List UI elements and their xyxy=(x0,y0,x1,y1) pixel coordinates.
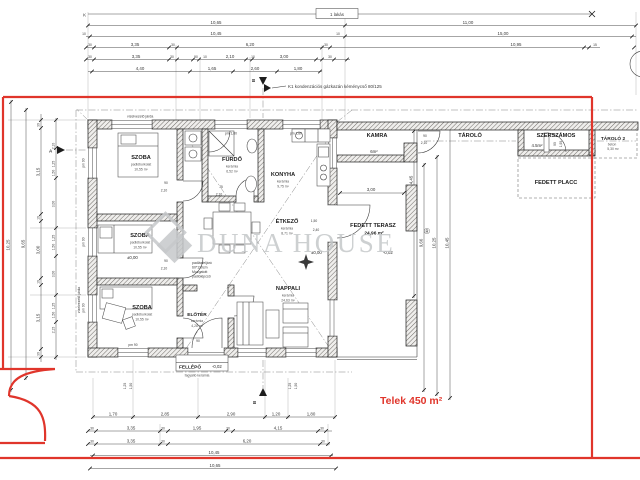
chair xyxy=(123,317,136,330)
door-dim: 75 xyxy=(219,185,223,189)
door-dim: 2,10 xyxy=(216,193,223,197)
registered-mark: ® xyxy=(424,227,430,236)
dim-label: 1,50 xyxy=(52,170,56,177)
room-material: fagyálló kerámia xyxy=(185,374,210,378)
dim-label: 30 xyxy=(324,43,328,47)
dim-label: 1,50 xyxy=(52,244,56,251)
dim-label: 11,00 xyxy=(463,20,474,25)
dim-label: 1,70 xyxy=(109,412,118,417)
dim-label: 6,20 xyxy=(243,439,252,444)
parapet-label: pm 1,80 xyxy=(290,132,302,136)
door-dim: 1,95 xyxy=(559,141,563,148)
dim-label: 15,00 xyxy=(498,31,510,36)
dim-label: 10,25 xyxy=(6,239,11,251)
dim-label: 1,25 xyxy=(123,383,127,390)
parapet-label: pm 1,80 xyxy=(225,132,237,136)
dim-label: 1,50 xyxy=(52,312,56,319)
dim-label: 30 xyxy=(328,55,332,59)
dim-label: 10,45 xyxy=(211,31,223,36)
parapet-label: pm 90 xyxy=(128,343,137,347)
dim-label: 10 xyxy=(37,216,41,220)
room-name: ELŐTÉR xyxy=(187,310,207,318)
plot-size-label: Telek 450 m² xyxy=(380,395,443,407)
dim-label: 10,65 xyxy=(210,463,222,468)
room-area: 5,30 m² xyxy=(607,147,619,151)
boundary-arc xyxy=(0,369,55,443)
room-name: KONYHA xyxy=(271,172,295,178)
dim-label: 3,00 xyxy=(280,54,289,59)
fedett-placc-outline xyxy=(518,158,595,198)
section-arrow-icon xyxy=(259,77,267,85)
dim-label: 1,25 xyxy=(288,383,292,390)
dim-label: 3,15 xyxy=(36,167,41,176)
dim-label: 30 xyxy=(161,440,165,444)
door-dim: 90 xyxy=(196,339,200,343)
door-dim: 90 xyxy=(423,134,427,138)
level-mark: -0,02 xyxy=(212,364,222,369)
dim-label: 3,00 xyxy=(367,187,376,192)
section-arrow-icon xyxy=(259,388,267,396)
dim-label: 30 xyxy=(171,43,175,47)
washing-machine xyxy=(185,131,201,145)
dim-label: 1,95 xyxy=(193,426,202,431)
level-mark: ±0,00 xyxy=(127,255,138,260)
dim-label: 1,50 xyxy=(129,383,133,390)
watermark-text: DUNA HOUSE xyxy=(197,228,395,258)
room-name: NAPPALI xyxy=(276,286,301,292)
dim-chain-top: K 1 lakás 10,65 11,00 10 10,45 10 15,00 … xyxy=(82,9,638,74)
room-name: SZERSZÁMOS xyxy=(537,132,576,139)
sofa xyxy=(283,303,308,323)
walkway-note: vízelvezető járda xyxy=(127,115,153,119)
chimney-note: K1 kondenzációs gázkazán kéménycső 80/12… xyxy=(288,84,382,89)
room-name: KAMRA xyxy=(367,133,388,139)
parapet-label: pm 90 xyxy=(82,158,86,167)
dim-label: 30 xyxy=(321,440,325,444)
dim-label: 10 xyxy=(37,280,41,284)
dim-label: 30 xyxy=(320,427,324,431)
dim-label: 10 xyxy=(203,55,207,59)
dim-label: 9,66 xyxy=(419,238,424,247)
door-dim: 90 xyxy=(164,259,168,263)
dim-label: 3,35 xyxy=(131,42,140,47)
room-material: kerámia xyxy=(226,165,238,169)
coffee-table xyxy=(266,310,279,338)
room-material: padlóburkolat xyxy=(132,313,152,317)
dim-label: 3,15 xyxy=(36,313,41,322)
door-dim: 2,10 xyxy=(161,267,168,271)
door-dim: 90 xyxy=(164,181,168,185)
dim-label: 2,60 xyxy=(251,66,260,71)
room-name: SZOBA xyxy=(132,305,152,311)
dim-label: 30 xyxy=(90,440,94,444)
dim-label: 3,00 xyxy=(36,245,41,254)
parapet-label: pm 90 xyxy=(82,303,86,312)
dim-label: 30 xyxy=(170,55,174,59)
dim-label: 10 xyxy=(82,32,86,36)
unit-label: 1 lakás xyxy=(330,12,345,17)
room-area: 6m² xyxy=(370,149,378,154)
dim-label: 3,35 xyxy=(132,54,141,59)
chimney-symbol xyxy=(264,84,271,92)
sink xyxy=(247,139,257,153)
room-name: SZOBA xyxy=(131,155,151,161)
dim-label: 2,85 xyxy=(161,412,170,417)
dim-label: 30 xyxy=(226,427,230,431)
dim-chain-bottom: 1,70 2,85 2,90 1,20 1,80 30 3,35 30 1,95… xyxy=(86,412,338,471)
dim-label: 30 xyxy=(90,427,94,431)
sofa xyxy=(237,302,263,345)
dim-label: 30 xyxy=(88,55,92,59)
dim-label: 30 xyxy=(88,43,92,47)
room-area: 4.5m² xyxy=(532,143,544,148)
dim-label: 6,20 xyxy=(246,42,255,47)
chair xyxy=(219,203,230,211)
dryer xyxy=(185,147,201,161)
detail-circle xyxy=(630,51,640,77)
dim-label: 15 xyxy=(593,43,597,47)
room-material: kerámia xyxy=(277,180,289,184)
dim-label: 1,20 xyxy=(272,412,281,417)
room-material: kerámia xyxy=(191,319,203,323)
dim-label: 1,80 xyxy=(294,66,303,71)
room-name: FEDETT PLACC xyxy=(535,180,578,186)
dim-label: 30 xyxy=(37,123,41,127)
room-material: beton xyxy=(608,143,617,147)
door-dim: 2,10 xyxy=(421,141,428,145)
dim-label: 30 xyxy=(37,352,41,356)
chair xyxy=(234,203,245,211)
dim-label: 10,45 xyxy=(209,450,221,455)
attic-note: Mozgatott xyxy=(192,270,207,274)
room-material: kerámia xyxy=(282,294,294,298)
dim-label: 3,00 xyxy=(52,201,56,208)
dim-label: 1,65 xyxy=(208,66,217,71)
room-area: 4,28 m² xyxy=(191,324,203,328)
dim-label: 10 xyxy=(336,32,340,36)
dim-k-mark: K xyxy=(83,13,86,18)
room-name: TÁROLÓ 2 xyxy=(601,134,626,142)
room-area: 10,55 m² xyxy=(134,168,148,172)
door-dim: 90 xyxy=(553,142,557,146)
room-area: 10,55 m² xyxy=(135,318,149,322)
room-area: 24,63 m² xyxy=(281,299,295,303)
dim-chain-right: 4,45 9,66 10,25 10,45 3,00 xyxy=(338,122,452,400)
floor-plan-drawing: K 1 lakás 10,65 11,00 10 10,45 10 15,00 … xyxy=(0,0,640,480)
room-area: 6,52 m² xyxy=(226,170,238,174)
dim-label: 3,35 xyxy=(127,439,136,444)
room-area: 9,75 m² xyxy=(277,185,289,189)
room-name: ÉTKEZŐ xyxy=(276,217,299,225)
room-material: padlóburkolat xyxy=(131,163,151,167)
dim-label: 2,15 xyxy=(52,327,56,334)
section-b-label: B xyxy=(252,400,257,404)
dim-label: 2,10 xyxy=(52,143,56,150)
dim-label: 10 xyxy=(251,55,255,59)
section-b-label: B xyxy=(251,78,256,82)
door-dim: 1,50 xyxy=(311,219,318,223)
room-name: FÜRDŐ xyxy=(222,156,243,163)
room-name: TÁROLÓ xyxy=(458,131,482,139)
parapet-label: pm 90 xyxy=(82,237,86,246)
room-material: padlóburkolat xyxy=(130,241,150,245)
dim-label: 10,25 xyxy=(432,237,437,249)
dim-label: 3,00 xyxy=(52,271,56,278)
door-dim: 2,10 xyxy=(161,189,168,193)
dim-chain-left: 10,25 9,65 30 3,15 10 3,00 10 3,15 30 2,… xyxy=(6,100,58,392)
chimney-annotation: K1 kondenzációs gázkazán kéménycső 80/12… xyxy=(264,84,382,92)
sofa xyxy=(283,327,308,347)
dim-label: 90 xyxy=(194,55,198,59)
attic-note: padlólépcső xyxy=(192,275,211,279)
dim-label: 10,95 xyxy=(511,42,523,47)
dim-label: 1,25 xyxy=(52,161,56,168)
dim-label: 1,25 xyxy=(52,303,56,310)
dim-label: 4,40 xyxy=(136,66,145,71)
dim-label: 4,15 xyxy=(274,426,283,431)
dim-label: 1,50 xyxy=(294,383,298,390)
dim-label: 10,65 xyxy=(211,20,223,25)
room-area: 10,55 m² xyxy=(133,246,147,250)
attic-note: 60*110cm xyxy=(192,266,208,270)
dim-label: 3,35 xyxy=(127,426,136,431)
dim-label: 9,65 xyxy=(21,239,26,248)
dim-label: 10,45 xyxy=(445,237,450,249)
dim-label: 2,90 xyxy=(227,412,236,417)
walkway-note: vízelvezető járda xyxy=(77,287,81,313)
section-arrow-icon xyxy=(57,146,65,154)
attic-note: padlásfeljáró xyxy=(192,261,212,265)
dim-label: 1,80 xyxy=(307,412,316,417)
dim-label: 2,10 xyxy=(226,54,235,59)
dim-label: 1,25 xyxy=(52,235,56,242)
toilet xyxy=(246,176,257,192)
dim-label: 30 xyxy=(161,427,165,431)
dim-label: 4,45 xyxy=(409,175,414,184)
